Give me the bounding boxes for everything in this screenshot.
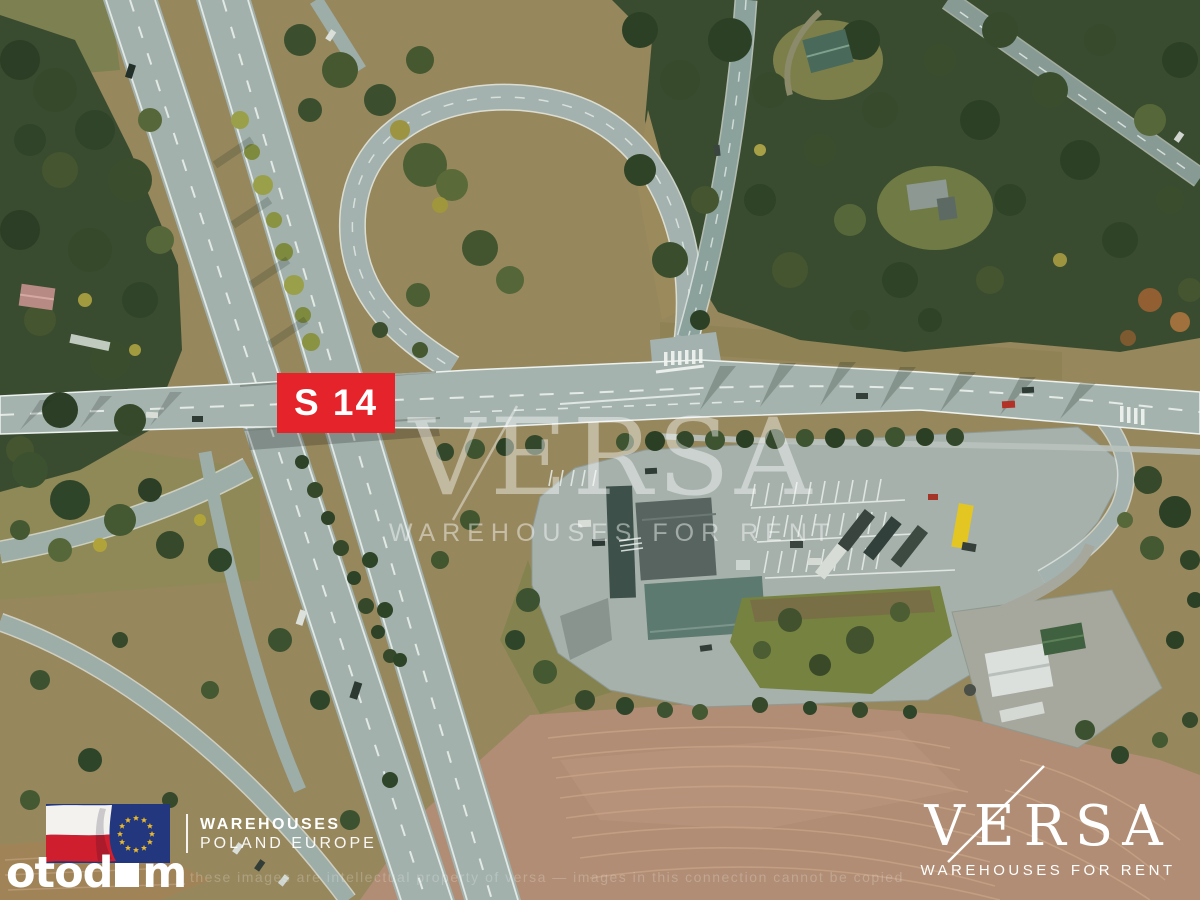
route-badge: S 14 bbox=[277, 373, 395, 433]
banner-divider bbox=[186, 814, 188, 853]
brand-logo-name: VERSA bbox=[902, 796, 1194, 858]
portal-logo-suffix: m bbox=[142, 848, 186, 898]
portal-logo-prefix: otod bbox=[6, 848, 112, 898]
portal-logo-square-icon bbox=[115, 863, 139, 887]
brand-logo: VERSA WAREHOUSES FOR RENT bbox=[902, 796, 1194, 879]
brand-logo-text: VERSA bbox=[924, 794, 1171, 859]
red-car bbox=[1002, 401, 1015, 409]
route-badge-label: S 14 bbox=[294, 382, 378, 424]
portal-logo: otodm bbox=[6, 852, 186, 895]
aerial-photo bbox=[0, 0, 1200, 900]
banner-line2: POLAND EUROPE bbox=[200, 834, 377, 853]
brand-logo-tagline: WAREHOUSES FOR RENT bbox=[902, 862, 1194, 879]
banner-line1: WAREHOUSES bbox=[200, 815, 377, 834]
banner-text: WAREHOUSES POLAND EUROPE bbox=[200, 815, 377, 853]
house-red-roof bbox=[19, 284, 56, 311]
listing-photo: S 14 VERSA WAREHOUSES FOR RENT WAREHOUSE… bbox=[0, 0, 1200, 900]
